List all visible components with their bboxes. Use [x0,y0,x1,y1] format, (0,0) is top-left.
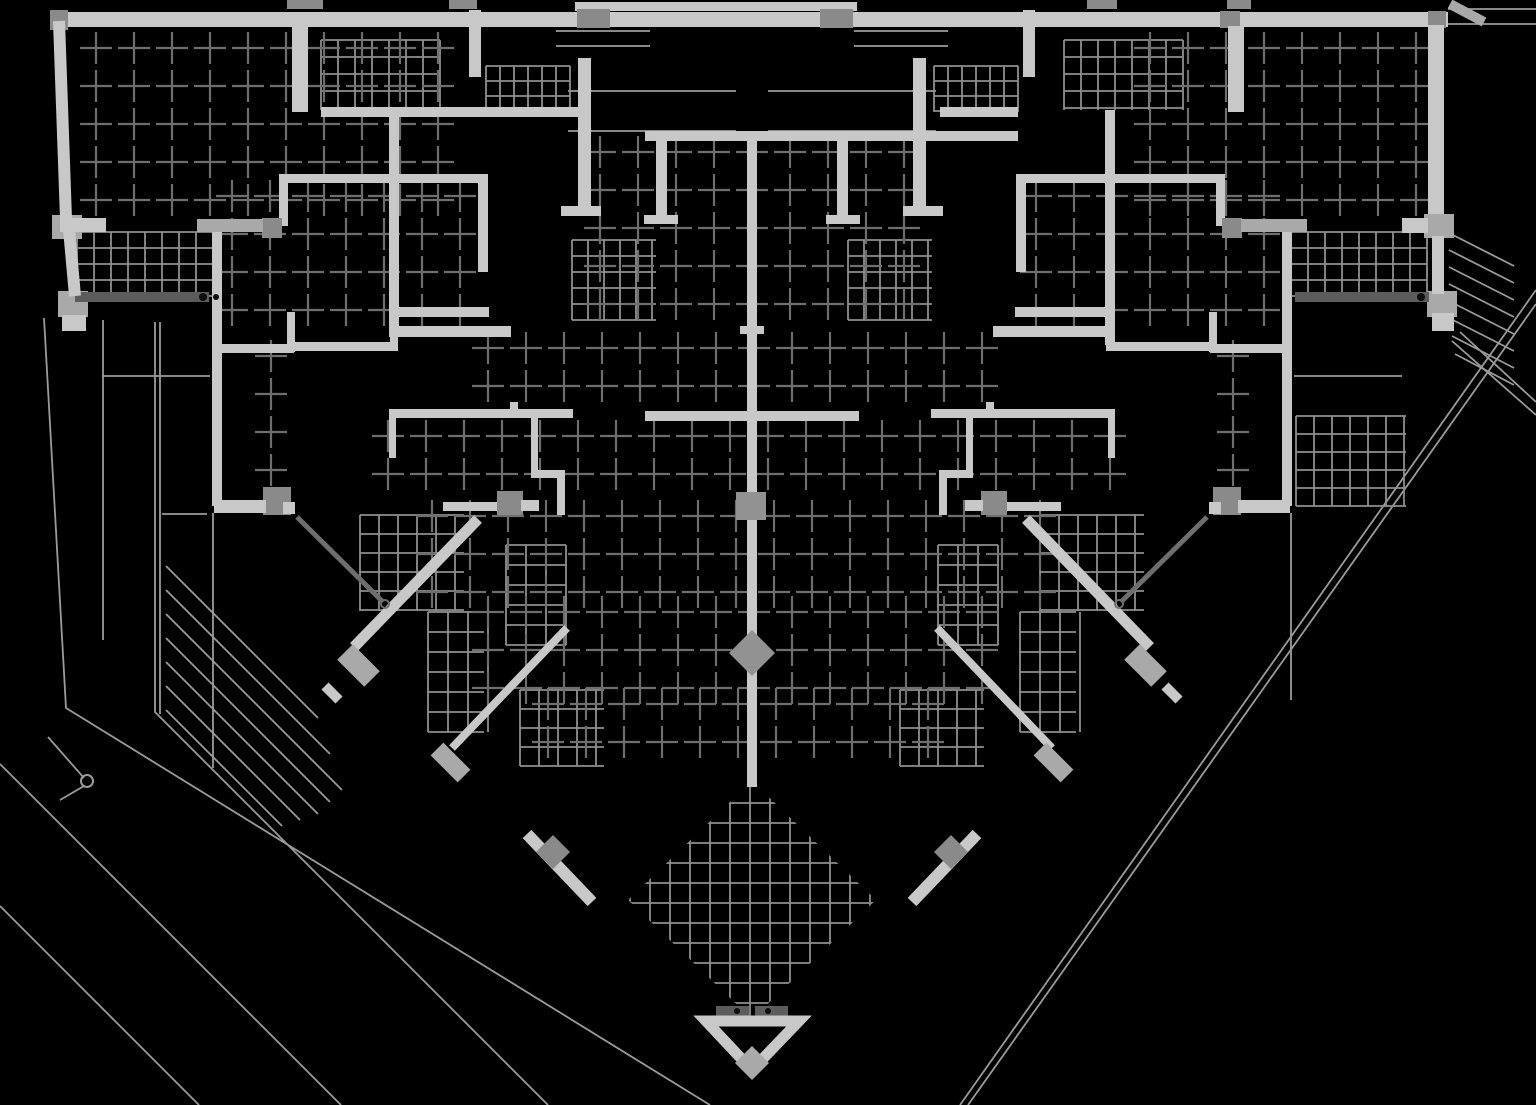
floor-plan-viewport [0,0,1536,1105]
floor-plan-canvas [0,0,1536,1105]
plan-background [0,0,1536,1105]
